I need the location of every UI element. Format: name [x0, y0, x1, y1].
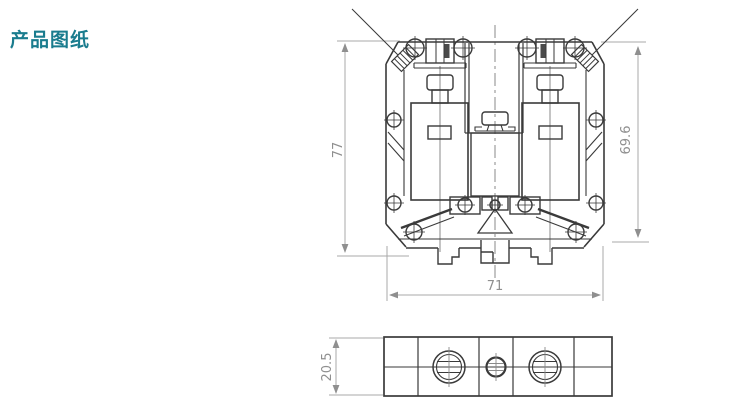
- product-drawing-canvas: 77 69.6 71 20.5: [0, 0, 750, 400]
- dim-total-height: 77: [331, 142, 346, 159]
- terminal-unit-right: [522, 75, 579, 200]
- dim-total-width: 71: [487, 279, 504, 294]
- terminal-unit-left: [411, 75, 468, 200]
- dimension-arrows: [333, 43, 642, 394]
- dim-depth: 20.5: [320, 353, 335, 382]
- bottom-view: [384, 337, 612, 396]
- dim-body-height: 69.6: [619, 126, 634, 155]
- dimension-annotations: 77 69.6 71 20.5: [320, 41, 649, 395]
